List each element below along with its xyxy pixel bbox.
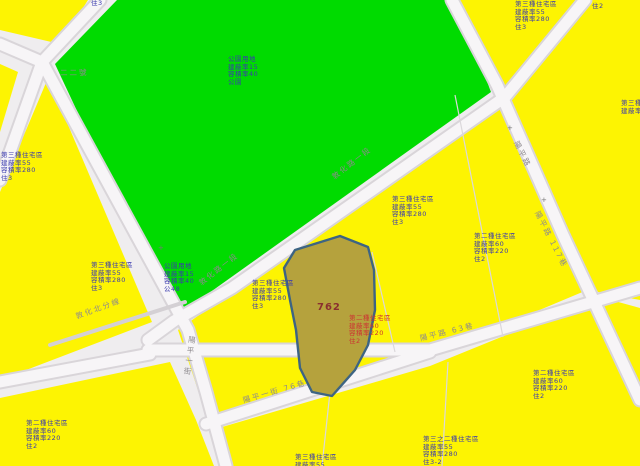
map-canvas [0, 0, 640, 466]
zoning-map[interactable]: 公園用地建蔽率15容積率40公園公園用地建蔽率15容積率40公48第三種住宅區建… [0, 0, 640, 466]
